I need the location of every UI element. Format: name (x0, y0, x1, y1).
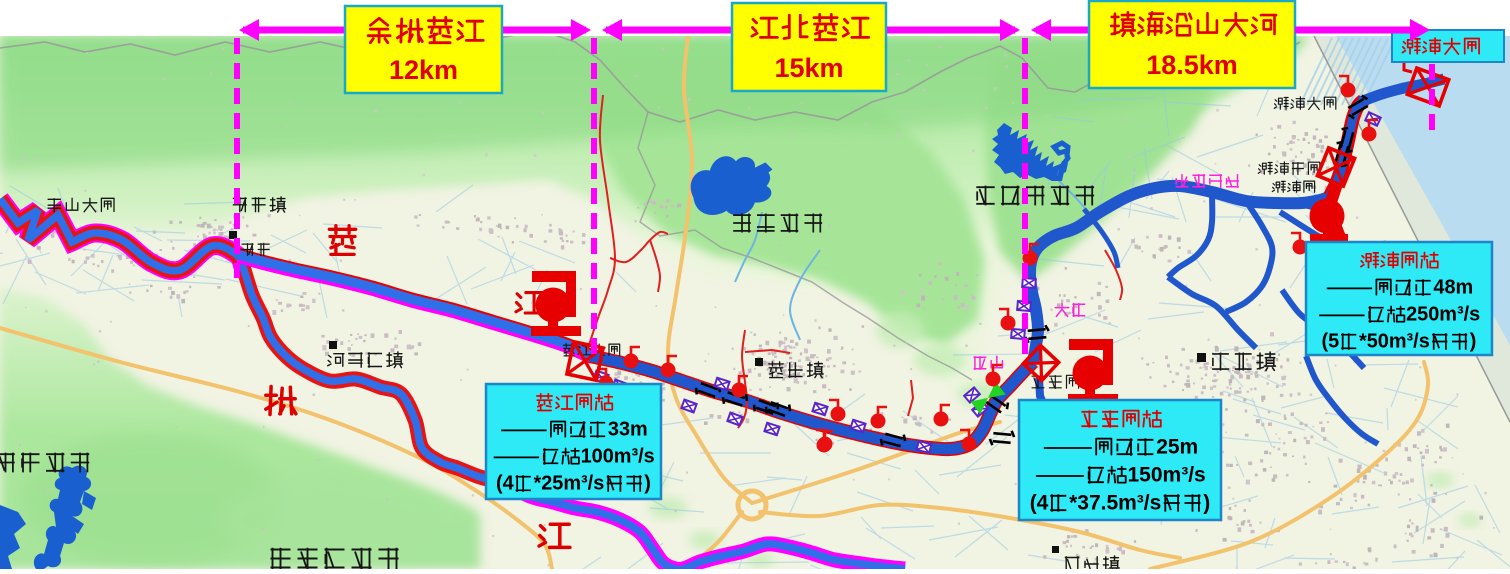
svg-text:12km: 12km (389, 55, 458, 85)
svg-text:25m: 25m (1156, 435, 1198, 458)
svg-text:*50m³/s: *50m³/s (1359, 331, 1430, 353)
svg-text:(4: (4 (1030, 491, 1049, 514)
svg-text:150m³/s: 150m³/s (1128, 463, 1206, 486)
svg-text:15km: 15km (774, 53, 843, 83)
svg-text:48m: 48m (1433, 277, 1473, 299)
svg-text:(5: (5 (1322, 331, 1340, 353)
svg-text:*25m³/s: *25m³/s (534, 473, 605, 495)
svg-text:*37.5m³/s: *37.5m³/s (1069, 491, 1161, 514)
svg-text:33m: 33m (608, 419, 648, 441)
svg-text:): ) (1203, 491, 1210, 514)
svg-text:): ) (644, 473, 651, 495)
svg-text:250m³/s: 250m³/s (1406, 304, 1480, 326)
svg-text:100m³/s: 100m³/s (581, 446, 655, 468)
svg-text:(4: (4 (496, 473, 514, 495)
svg-text:): ) (1470, 331, 1477, 353)
svg-text:18.5km: 18.5km (1146, 50, 1238, 80)
